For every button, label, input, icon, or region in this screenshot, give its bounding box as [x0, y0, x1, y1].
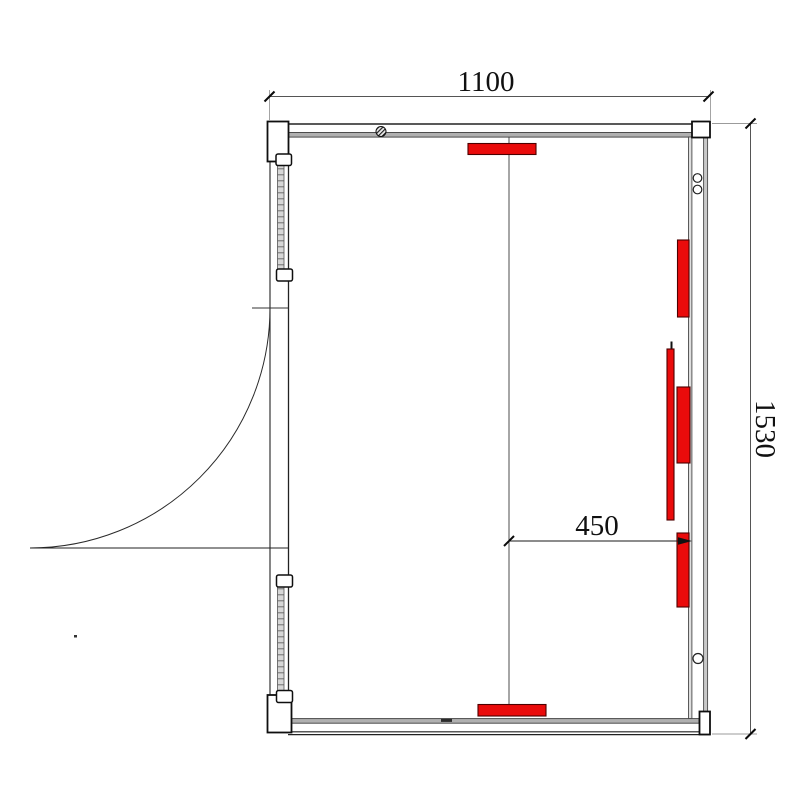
corner-posts — [268, 122, 711, 735]
mount-hole-top-2 — [693, 185, 702, 194]
dimension-offset: 450 — [504, 510, 692, 546]
door-swing-arc — [30, 308, 270, 548]
heater-right-middle — [677, 387, 690, 463]
heater-bottom — [478, 705, 546, 717]
floor-plan-page: 1100 1530 450 — [0, 0, 800, 800]
heater-right-strip — [667, 349, 674, 520]
heater-panels — [468, 144, 690, 717]
hinge-cap-1 — [276, 154, 292, 166]
corner-post-bottom-right — [700, 712, 711, 735]
right-wall-outer-band — [704, 138, 708, 712]
heater-top — [468, 144, 536, 155]
room-walls — [270, 124, 710, 735]
glass-panel-lower — [278, 580, 285, 698]
dimension-width: 1100 — [265, 66, 714, 121]
width-dimension-label: 1100 — [458, 66, 515, 98]
hinge-cap-2 — [277, 269, 293, 281]
depth-dimension-label: 1530 — [749, 400, 781, 458]
vent-hole-icon — [376, 127, 386, 137]
mount-hole-top-1 — [693, 174, 702, 183]
left-glass-panels — [276, 154, 293, 703]
stray-speck — [74, 635, 77, 638]
floor-plan-canvas: 1100 1530 450 — [0, 0, 800, 800]
hinge-cap-4 — [277, 691, 293, 703]
mount-hole-bottom — [693, 654, 703, 664]
offset-dimension-label: 450 — [575, 510, 619, 542]
hinge-cap-3 — [277, 575, 293, 587]
fittings — [74, 127, 703, 722]
top-wall-band — [288, 133, 692, 138]
dimension-depth: 1530 — [712, 119, 781, 740]
glass-panel-upper — [278, 158, 285, 278]
bottom-wall-mark — [441, 719, 452, 722]
corner-post-top-right — [692, 122, 710, 138]
heater-right-upper — [678, 240, 690, 317]
bottom-wall-band — [291, 719, 699, 724]
door — [30, 308, 289, 548]
